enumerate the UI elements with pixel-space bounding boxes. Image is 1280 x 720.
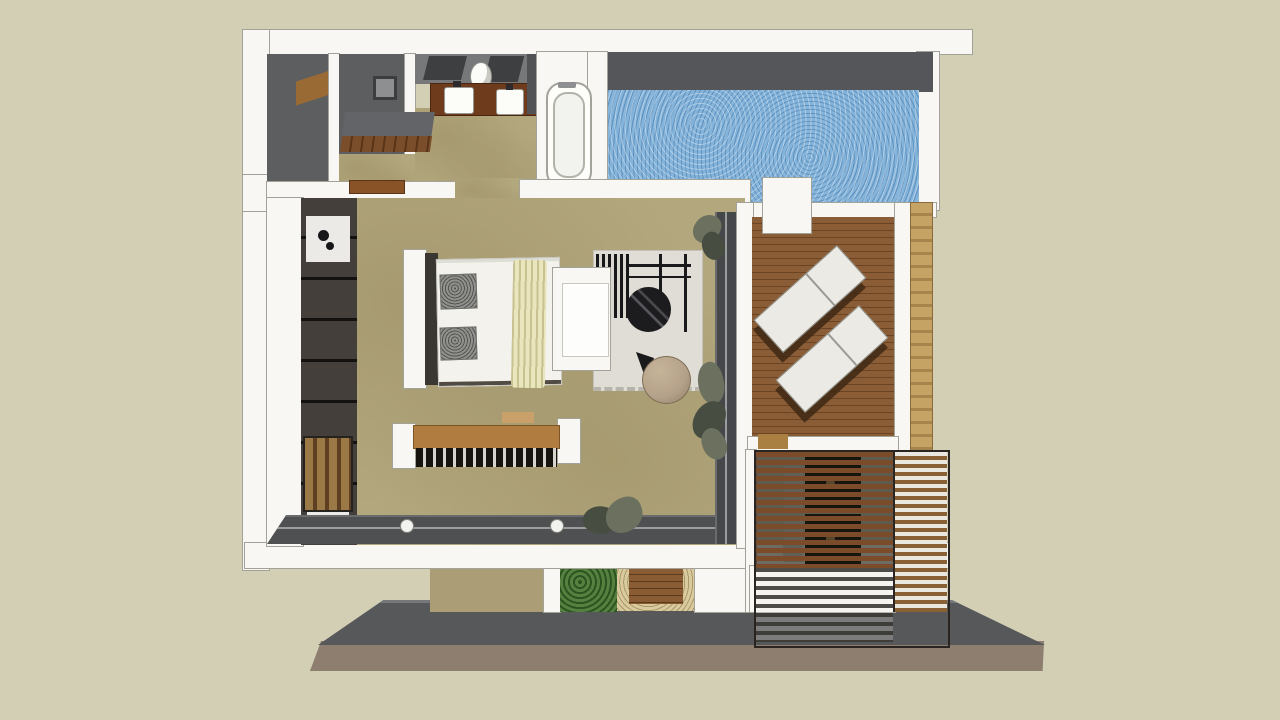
- faucet-left-icon: [453, 81, 461, 87]
- bathroom-partition-1: [329, 54, 339, 182]
- plant-corner-top: [690, 212, 728, 264]
- bed-throw: [511, 260, 547, 389]
- plant-corner-mid: [692, 362, 732, 462]
- lounger-1-backrest-line: [806, 273, 836, 306]
- door-handle-1: [400, 519, 414, 533]
- bench-wood-beam: [414, 426, 559, 448]
- chair-frame-line-v2: [684, 254, 687, 332]
- minibar-cabinet: [305, 438, 351, 510]
- wardrobe-open-niche: [306, 216, 350, 262]
- bed-pillow-1: [439, 273, 477, 309]
- wardrobe-accessory-1: [318, 230, 329, 241]
- pergola-wood-block: [758, 434, 788, 449]
- knitted-pouf: [642, 356, 691, 404]
- coffee-table: [626, 287, 671, 332]
- bed-pillow-2: [439, 326, 477, 360]
- bench-tray: [502, 412, 534, 423]
- pool-entry-platform: [763, 178, 811, 233]
- bathtub: [546, 82, 592, 188]
- shower-drain: [373, 76, 397, 100]
- exterior-wall-white: [695, 566, 750, 612]
- exterior-pillar: [544, 566, 560, 612]
- vanity-mirror-1: [423, 56, 467, 80]
- headboard-panel: [404, 250, 426, 388]
- bench-end-left: [393, 424, 415, 468]
- sink-right: [496, 89, 524, 115]
- bathtub-basin: [553, 92, 585, 178]
- bathtub-faucet-icon: [558, 82, 576, 88]
- sink-left: [444, 87, 474, 114]
- entry-step-wood: [629, 568, 683, 604]
- top-wall: [243, 30, 972, 54]
- floorplan-render: [0, 0, 1280, 720]
- pergola-frame: [754, 450, 950, 648]
- bench-end-right: [558, 419, 580, 463]
- plant-corner-bottom: [583, 498, 645, 548]
- luggage-bench: [350, 181, 404, 193]
- door-handle-2: [550, 519, 564, 533]
- wardrobe-accessory-2: [326, 242, 334, 250]
- bench-slat-base: [416, 448, 557, 467]
- faucet-right-icon: [506, 84, 513, 90]
- sliding-door-track-south: [267, 515, 745, 544]
- exterior-wall-tan: [430, 568, 545, 612]
- shower-bench-front: [340, 136, 432, 152]
- shower-bench-top: [341, 112, 435, 138]
- lounger-2-backrest-line: [828, 333, 858, 366]
- chaise-cushion: [562, 283, 609, 357]
- stone-pillar-wall: [911, 203, 932, 453]
- left-wall: [243, 30, 269, 570]
- pool-back-wall: [600, 52, 933, 92]
- hedge-panel: [560, 566, 617, 612]
- closet-corridor-floor: [267, 198, 303, 546]
